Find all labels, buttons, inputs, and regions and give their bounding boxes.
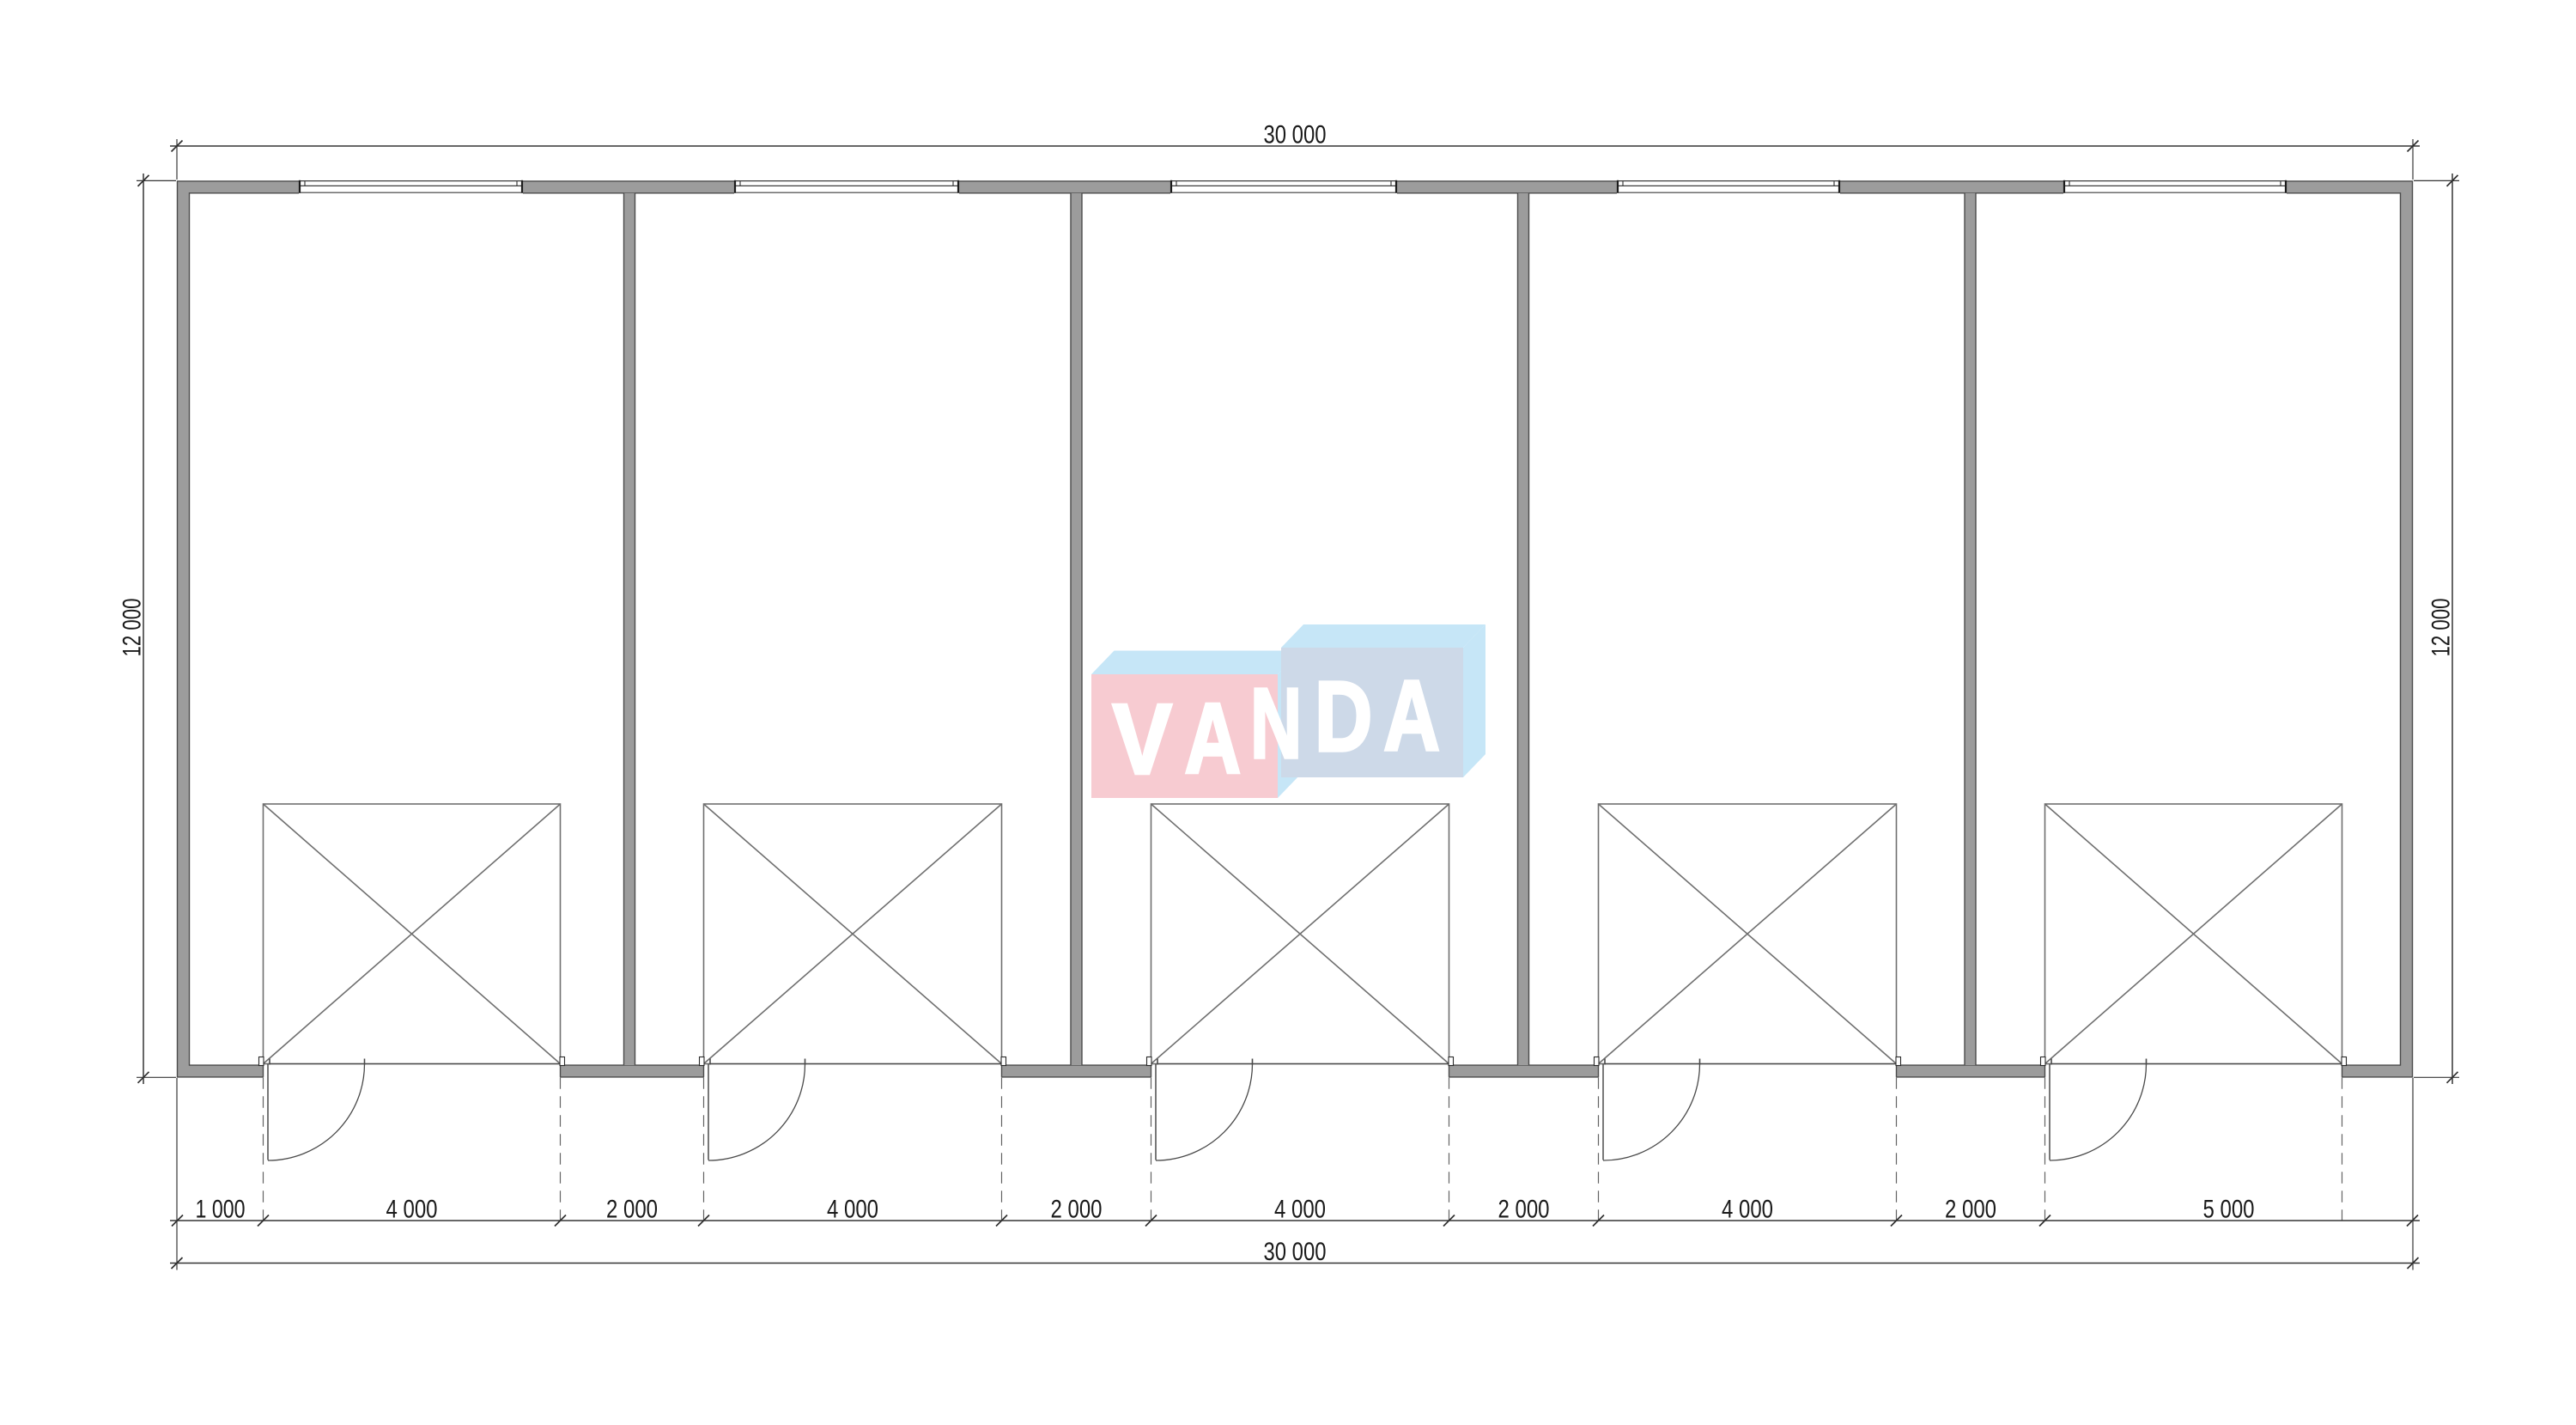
- svg-text:12 000: 12 000: [2427, 599, 2456, 657]
- svg-text:2 000: 2 000: [606, 1196, 658, 1224]
- svg-text:30 000: 30 000: [1264, 1238, 1327, 1266]
- svg-text:2 000: 2 000: [1051, 1196, 1103, 1224]
- svg-text:A: A: [1185, 683, 1242, 795]
- svg-text:1 000: 1 000: [196, 1196, 246, 1224]
- svg-text:D: D: [1315, 661, 1373, 772]
- svg-text:2 000: 2 000: [1498, 1196, 1550, 1224]
- svg-text:4 000: 4 000: [1274, 1196, 1326, 1224]
- svg-text:4 000: 4 000: [827, 1196, 878, 1224]
- svg-text:4 000: 4 000: [386, 1196, 438, 1224]
- svg-text:12 000: 12 000: [118, 599, 147, 657]
- svg-text:A: A: [1383, 660, 1440, 771]
- svg-text:N: N: [1250, 667, 1302, 779]
- svg-text:V: V: [1113, 683, 1172, 795]
- svg-text:2 000: 2 000: [1945, 1196, 1996, 1224]
- svg-text:5 000: 5 000: [2203, 1196, 2255, 1224]
- svg-text:30 000: 30 000: [1264, 121, 1327, 149]
- svg-text:4 000: 4 000: [1722, 1196, 1773, 1224]
